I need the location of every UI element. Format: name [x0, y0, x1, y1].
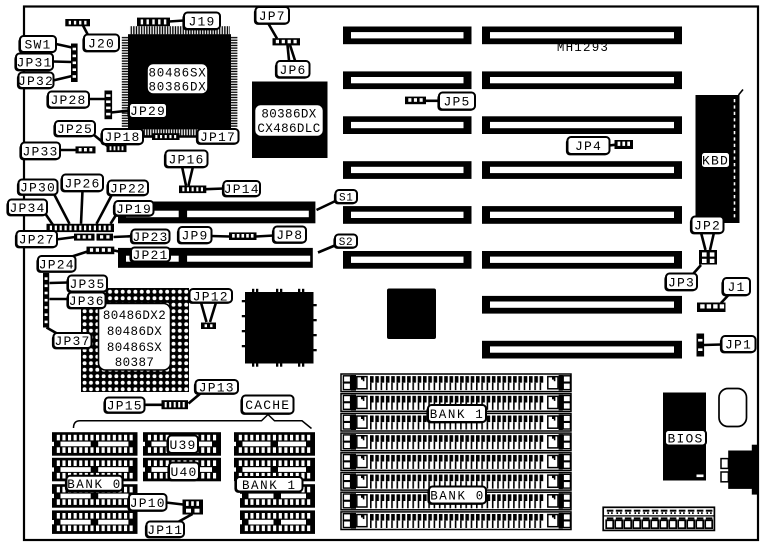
- svg-text:80387: 80387: [115, 356, 155, 370]
- svg-text:BIOS: BIOS: [667, 431, 703, 446]
- svg-text:JP14: JP14: [224, 182, 260, 197]
- svg-text:KBD: KBD: [702, 154, 729, 169]
- svg-text:JP30: JP30: [20, 181, 56, 196]
- svg-text:JP25: JP25: [57, 122, 93, 137]
- svg-text:JP32: JP32: [18, 74, 54, 89]
- svg-text:S1: S1: [339, 192, 353, 204]
- svg-text:JP11: JP11: [147, 523, 183, 538]
- svg-text:80486SX: 80486SX: [148, 67, 206, 81]
- svg-text:80486DX2: 80486DX2: [103, 309, 166, 323]
- svg-text:JP26: JP26: [64, 176, 100, 191]
- svg-text:JP9: JP9: [181, 229, 208, 244]
- svg-text:BANK 1: BANK 1: [430, 408, 485, 422]
- svg-text:JP31: JP31: [16, 55, 52, 70]
- svg-text:U39: U39: [169, 438, 196, 453]
- svg-text:S2: S2: [339, 237, 353, 249]
- svg-text:BANK 0: BANK 0: [67, 478, 122, 492]
- svg-text:JP27: JP27: [19, 233, 55, 248]
- svg-text:SW1: SW1: [24, 38, 51, 53]
- svg-text:JP8: JP8: [276, 228, 303, 243]
- svg-text:MH1293: MH1293: [557, 41, 609, 55]
- svg-text:JP13: JP13: [199, 380, 235, 395]
- svg-text:J20: J20: [88, 36, 115, 51]
- svg-text:JP10: JP10: [130, 496, 166, 511]
- svg-text:JP4: JP4: [575, 139, 602, 154]
- svg-text:U40: U40: [170, 465, 197, 480]
- svg-text:JP21: JP21: [132, 248, 168, 263]
- svg-text:JP29: JP29: [130, 104, 166, 119]
- svg-text:JP34: JP34: [9, 201, 45, 216]
- svg-text:JP6: JP6: [279, 63, 306, 78]
- svg-text:JP36: JP36: [69, 294, 105, 309]
- svg-text:J1: J1: [727, 280, 745, 295]
- svg-text:JP7: JP7: [259, 9, 286, 24]
- svg-text:JP28: JP28: [50, 93, 86, 108]
- svg-text:J19: J19: [188, 14, 215, 29]
- svg-text:BANK 0: BANK 0: [430, 490, 485, 504]
- svg-text:JP5: JP5: [443, 95, 470, 110]
- svg-text:JP16: JP16: [168, 152, 204, 167]
- svg-text:JP35: JP35: [69, 277, 105, 292]
- svg-text:JP33: JP33: [22, 144, 58, 159]
- svg-text:BANK 1: BANK 1: [242, 479, 297, 493]
- svg-text:JP12: JP12: [193, 289, 229, 304]
- svg-text:JP1: JP1: [725, 338, 752, 353]
- svg-text:JP3: JP3: [668, 275, 695, 290]
- svg-text:CX486DLC: CX486DLC: [257, 122, 320, 136]
- svg-text:80486DX: 80486DX: [107, 325, 162, 339]
- svg-text:80386DX: 80386DX: [148, 81, 206, 95]
- svg-text:80386DX: 80386DX: [261, 108, 316, 122]
- svg-text:CACHE: CACHE: [245, 398, 290, 413]
- svg-text:JP37: JP37: [54, 334, 90, 349]
- svg-text:JP24: JP24: [39, 257, 75, 272]
- svg-text:JP19: JP19: [116, 202, 152, 217]
- svg-text:JP23: JP23: [132, 230, 168, 245]
- svg-text:JP22: JP22: [110, 181, 146, 196]
- svg-text:80486SX: 80486SX: [107, 341, 162, 355]
- svg-text:JP15: JP15: [107, 399, 143, 414]
- svg-text:JP2: JP2: [694, 218, 721, 233]
- svg-text:JP17: JP17: [200, 130, 236, 145]
- svg-text:JP18: JP18: [104, 130, 140, 145]
